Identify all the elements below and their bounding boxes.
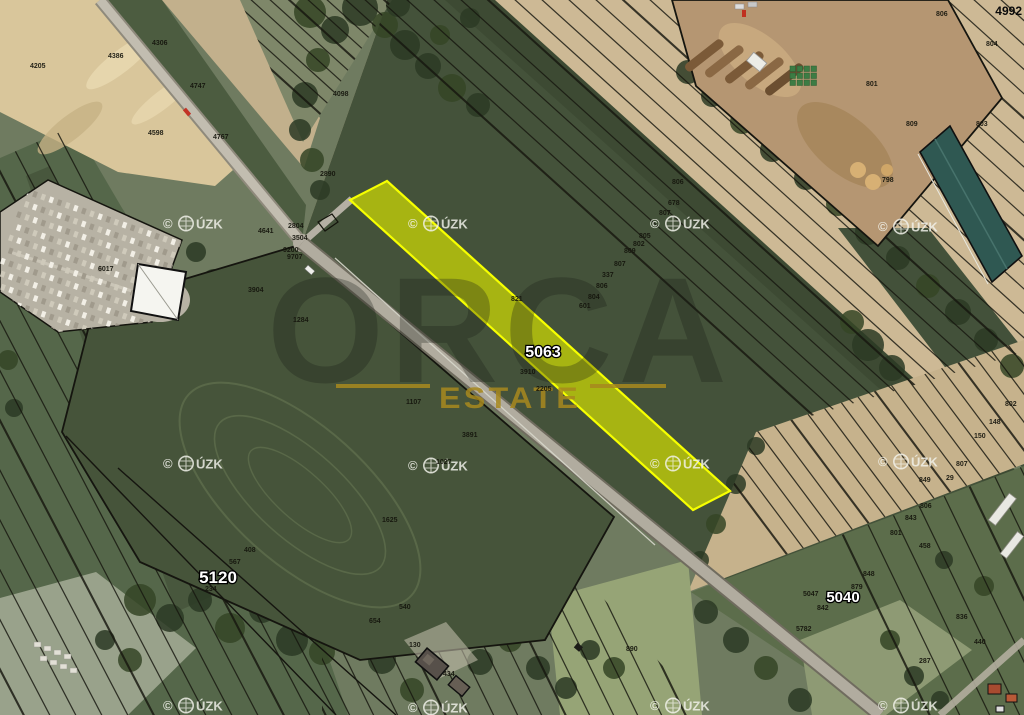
svg-text:848: 848	[863, 571, 875, 578]
svg-text:130: 130	[409, 642, 421, 649]
svg-text:29: 29	[946, 475, 954, 482]
svg-text:287: 287	[919, 658, 931, 665]
svg-text:4747: 4747	[190, 83, 206, 90]
svg-text:806: 806	[920, 503, 932, 510]
svg-text:540: 540	[399, 604, 411, 611]
svg-text:2205: 2205	[536, 386, 552, 393]
svg-text:890: 890	[626, 646, 638, 653]
svg-text:805: 805	[639, 233, 651, 240]
svg-text:1107: 1107	[406, 399, 421, 406]
parcel-label-5040: 5040	[826, 589, 859, 606]
svg-text:4306: 4306	[152, 40, 168, 47]
svg-text:408: 408	[244, 547, 256, 554]
svg-text:3891: 3891	[462, 432, 478, 439]
svg-text:678: 678	[668, 200, 680, 207]
parcel-label-5120: 5120	[199, 568, 237, 587]
svg-text:806: 806	[596, 283, 608, 290]
brand-watermark: ORCA ESTATE	[267, 246, 733, 415]
svg-text:150: 150	[974, 433, 986, 440]
svg-text:2804: 2804	[288, 223, 304, 230]
svg-text:4098: 4098	[333, 91, 349, 98]
svg-text:601: 601	[579, 303, 591, 310]
svg-text:3904: 3904	[248, 287, 264, 294]
svg-text:4641: 4641	[258, 228, 274, 235]
svg-text:4386: 4386	[108, 53, 124, 60]
svg-text:802: 802	[633, 241, 645, 248]
svg-text:337: 337	[602, 272, 614, 279]
svg-text:807: 807	[614, 261, 626, 268]
svg-text:9200: 9200	[283, 247, 299, 254]
svg-text:843: 843	[905, 515, 917, 522]
svg-text:821: 821	[511, 296, 523, 303]
svg-text:1284: 1284	[293, 317, 309, 324]
parcel-label-5063: 5063	[525, 344, 561, 361]
svg-text:798: 798	[882, 177, 894, 184]
svg-text:6017: 6017	[98, 266, 114, 273]
svg-text:849: 849	[919, 477, 931, 484]
svg-text:5782: 5782	[796, 626, 812, 633]
svg-text:148: 148	[989, 419, 1001, 426]
svg-text:5047: 5047	[803, 591, 819, 598]
svg-text:806: 806	[672, 179, 684, 186]
svg-text:804: 804	[986, 41, 998, 48]
svg-text:804: 804	[588, 294, 600, 301]
svg-text:458: 458	[919, 543, 931, 550]
svg-text:801: 801	[890, 530, 902, 537]
map-canvas[interactable]: © ÚZK	[0, 0, 1024, 715]
svg-text:809: 809	[906, 121, 918, 128]
svg-text:9707: 9707	[287, 254, 303, 261]
svg-text:807: 807	[659, 210, 671, 217]
svg-text:440: 440	[974, 639, 986, 646]
svg-text:806: 806	[936, 11, 948, 18]
svg-text:4598: 4598	[148, 130, 164, 137]
svg-text:434: 434	[443, 671, 455, 678]
svg-text:4767: 4767	[213, 134, 229, 141]
svg-text:801: 801	[866, 81, 878, 88]
svg-text:809: 809	[624, 248, 636, 255]
svg-text:2890: 2890	[320, 171, 336, 178]
svg-text:842: 842	[817, 605, 829, 612]
svg-text:234: 234	[205, 586, 217, 593]
svg-text:1027: 1027	[436, 459, 452, 466]
brand-sub: ESTATE	[439, 382, 581, 415]
svg-text:3910: 3910	[520, 369, 536, 376]
svg-text:567: 567	[229, 559, 241, 566]
parcel-label-4992: 4992	[995, 4, 1022, 18]
svg-text:3504: 3504	[292, 235, 308, 242]
svg-text:654: 654	[369, 618, 381, 625]
svg-text:1625: 1625	[382, 517, 398, 524]
svg-text:807: 807	[956, 461, 968, 468]
svg-text:4205: 4205	[30, 63, 46, 70]
svg-text:802: 802	[1005, 401, 1017, 408]
map-viewport[interactable]: © ÚZK	[0, 0, 1024, 715]
svg-text:803: 803	[976, 121, 988, 128]
svg-text:836: 836	[956, 614, 968, 621]
